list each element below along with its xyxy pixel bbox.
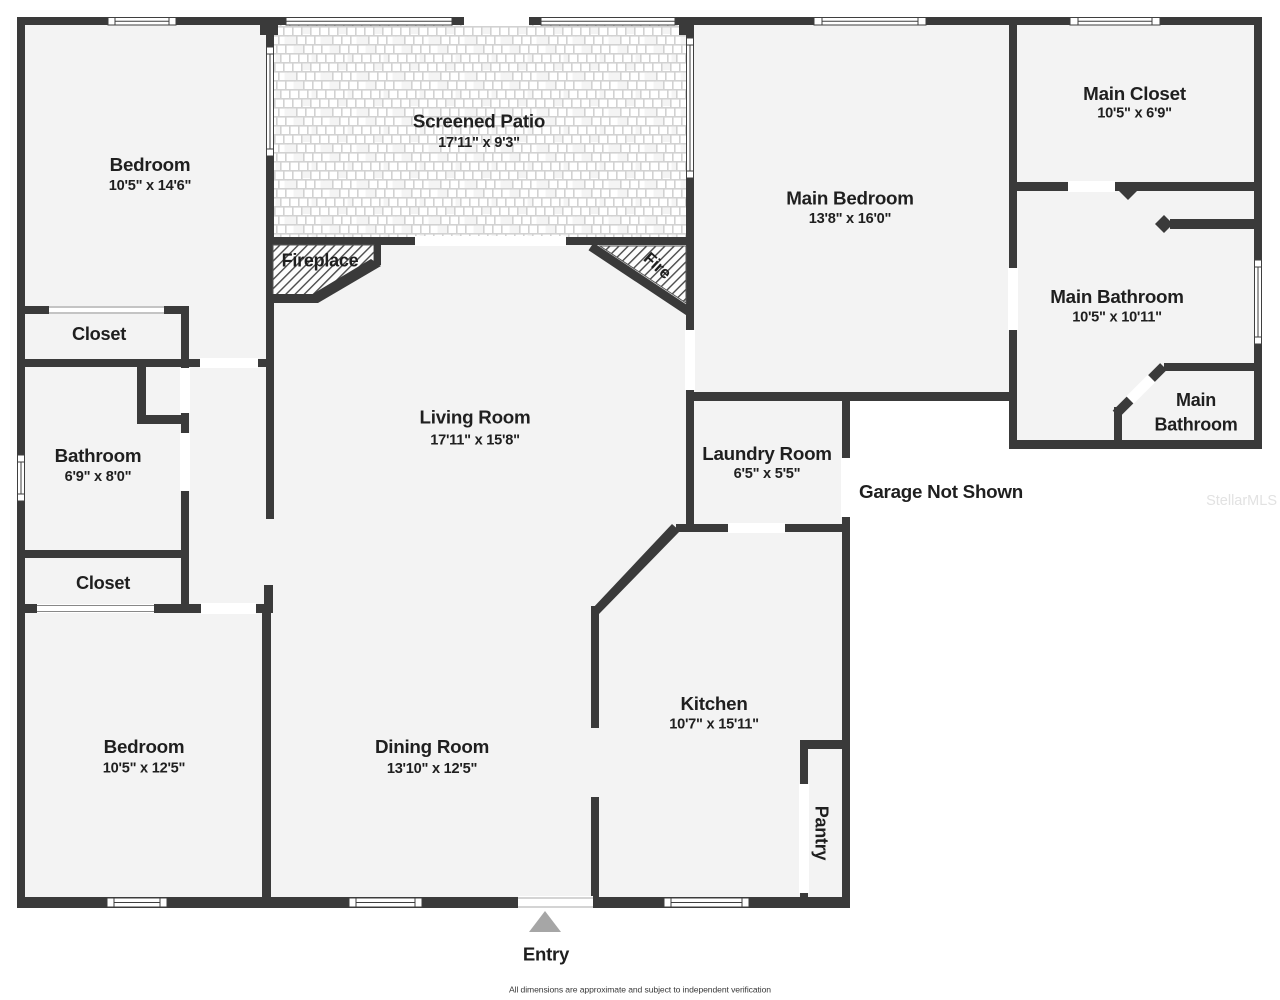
svg-text:Bathroom: Bathroom xyxy=(55,445,142,466)
svg-text:Entry: Entry xyxy=(523,944,570,965)
svg-text:10'5" x 10'11": 10'5" x 10'11" xyxy=(1072,310,1162,326)
svg-text:10'5" x 12'5": 10'5" x 12'5" xyxy=(103,761,185,777)
svg-text:StellarMLS: StellarMLS xyxy=(1206,493,1277,509)
svg-text:Main: Main xyxy=(1176,390,1216,410)
svg-text:6'5" x 5'5": 6'5" x 5'5" xyxy=(734,466,801,482)
svg-text:Main Bedroom: Main Bedroom xyxy=(786,188,913,209)
svg-text:17'11" x 9'3": 17'11" x 9'3" xyxy=(438,135,520,151)
svg-text:Laundry Room: Laundry Room xyxy=(702,443,832,464)
svg-text:Dining Room: Dining Room xyxy=(375,736,489,757)
svg-text:17'11" x 15'8": 17'11" x 15'8" xyxy=(430,433,520,449)
svg-text:Garage Not Shown: Garage Not Shown xyxy=(859,481,1023,502)
svg-text:13'10" x 12'5": 13'10" x 12'5" xyxy=(387,761,477,777)
svg-text:Closet: Closet xyxy=(76,573,130,593)
svg-text:Bedroom: Bedroom xyxy=(110,154,191,175)
svg-text:10'7" x 15'11": 10'7" x 15'11" xyxy=(669,717,759,733)
svg-text:13'8" x 16'0": 13'8" x 16'0" xyxy=(809,211,891,227)
svg-text:Main Closet: Main Closet xyxy=(1083,83,1187,104)
svg-text:6'9" x 8'0": 6'9" x 8'0" xyxy=(65,469,132,485)
svg-text:10'5" x 6'9": 10'5" x 6'9" xyxy=(1097,106,1172,122)
svg-text:All dimensions are approximate: All dimensions are approximate and subje… xyxy=(509,985,771,995)
svg-text:Living Room: Living Room xyxy=(420,407,531,428)
svg-text:10'5" x 14'6": 10'5" x 14'6" xyxy=(109,178,191,194)
svg-text:Kitchen: Kitchen xyxy=(680,693,747,714)
svg-text:Bathroom: Bathroom xyxy=(1155,415,1238,435)
svg-text:Closet: Closet xyxy=(72,324,126,344)
svg-text:Bedroom: Bedroom xyxy=(104,736,185,757)
svg-text:Main Bathroom: Main Bathroom xyxy=(1050,286,1183,307)
svg-text:Screened Patio: Screened Patio xyxy=(413,111,545,132)
svg-text:Fireplace: Fireplace xyxy=(282,251,359,271)
svg-text:Pantry: Pantry xyxy=(812,806,832,861)
